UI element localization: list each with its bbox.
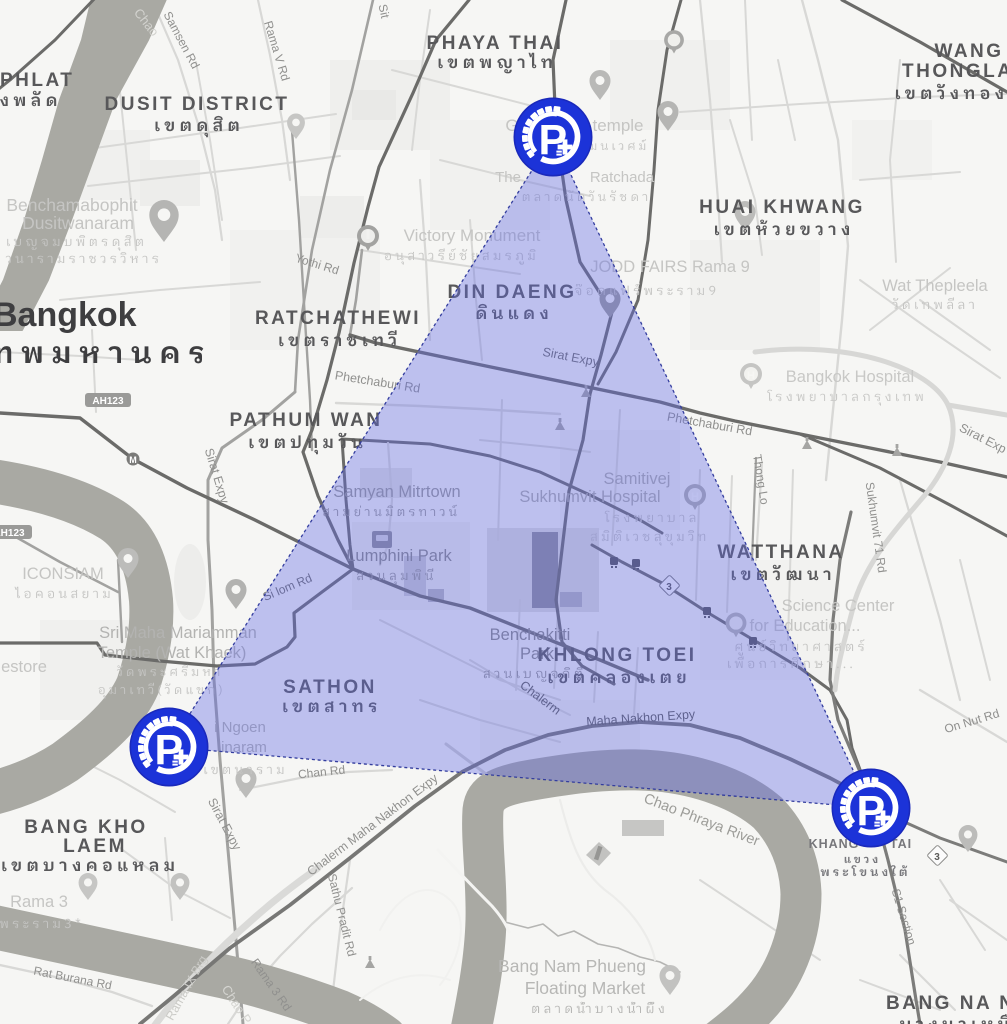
svg-text:DUSIT DISTRICT: DUSIT DISTRICT <box>105 94 290 115</box>
svg-text:Bangkok Hospital: Bangkok Hospital <box>786 368 914 386</box>
svg-text:M: M <box>129 455 137 465</box>
svg-text:RATCHATHEWI: RATCHATHEWI <box>255 308 421 329</box>
svg-text:H: H <box>747 370 755 382</box>
svg-text:Science Center: Science Center <box>782 597 895 615</box>
svg-text:Benchamabophit: Benchamabophit <box>6 195 137 215</box>
svg-text:THONGLANG: THONGLANG <box>902 61 1007 82</box>
svg-text:Bangkok: Bangkok <box>0 296 137 334</box>
svg-text:BANG NA N: BANG NA N <box>886 993 1007 1014</box>
svg-text:estore: estore <box>1 658 47 676</box>
svg-text:LAEM: LAEM <box>63 836 127 857</box>
svg-text:The: The <box>495 169 521 186</box>
svg-text:WANG: WANG <box>934 41 1003 62</box>
svg-text:Sri Maha Mariamman: Sri Maha Mariamman <box>99 624 257 642</box>
svg-text:Rama 3: Rama 3 <box>10 893 68 911</box>
svg-text:PHLAT: PHLAT <box>0 70 74 91</box>
svg-text:HUAI KHWANG: HUAI KHWANG <box>699 197 865 218</box>
svg-text:3: 3 <box>934 852 940 863</box>
svg-text:PHAYA THAI: PHAYA THAI <box>427 33 564 54</box>
svg-text:Bang Nam Phueng: Bang Nam Phueng <box>498 956 646 976</box>
svg-text:Wat Thepleela: Wat Thepleela <box>882 277 988 295</box>
svg-text:Ratchada: Ratchada <box>590 169 655 186</box>
svg-text:PATHUM WAN: PATHUM WAN <box>229 410 382 431</box>
svg-text:AH123: AH123 <box>92 396 124 407</box>
svg-text:ICONSIAM: ICONSIAM <box>22 565 104 583</box>
svg-text:temple: temple <box>592 116 643 135</box>
svg-text:Floating Market: Floating Market <box>525 978 646 998</box>
svg-text:BANG KHO: BANG KHO <box>24 817 147 838</box>
svg-text:Dusitwanaram: Dusitwanaram <box>22 213 134 233</box>
svg-text:AH123: AH123 <box>0 528 25 539</box>
